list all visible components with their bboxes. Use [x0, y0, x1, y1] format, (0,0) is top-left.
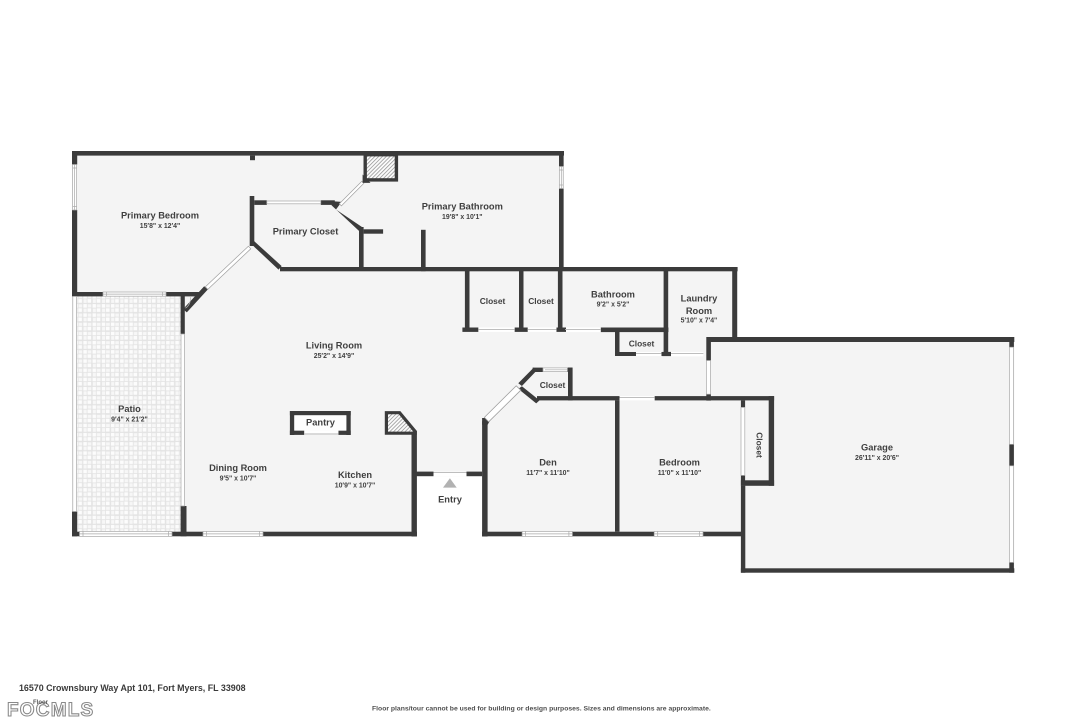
svg-text:Closet: Closet [480, 296, 506, 306]
svg-text:Pantry: Pantry [306, 418, 336, 428]
svg-text:19′8" x 10′1": 19′8" x 10′1" [442, 214, 483, 221]
svg-text:Entry: Entry [438, 495, 463, 505]
svg-text:Bathroom: Bathroom [591, 290, 635, 300]
svg-text:Primary Bathroom: Primary Bathroom [422, 202, 503, 212]
svg-text:Closet: Closet [540, 380, 566, 390]
svg-text:Closet: Closet [755, 432, 765, 458]
svg-text:Bedroom: Bedroom [659, 458, 700, 468]
svg-text:15′8" x 12′4": 15′8" x 12′4" [140, 223, 181, 230]
svg-text:25′2" x 14′9": 25′2" x 14′9" [314, 353, 355, 360]
svg-text:5′10" x 7′4": 5′10" x 7′4" [681, 318, 718, 325]
svg-text:Living Room: Living Room [306, 341, 362, 351]
svg-text:Garage: Garage [861, 443, 893, 453]
svg-text:Primary Bedroom: Primary Bedroom [121, 211, 199, 221]
svg-text:16570 Crownsbury Way Apt 101,: 16570 Crownsbury Way Apt 101, Fort Myers… [19, 683, 246, 693]
svg-text:9′2" x 5′2": 9′2" x 5′2" [597, 302, 630, 309]
svg-text:Room: Room [686, 306, 712, 316]
svg-text:Floor plans/tour cannot be use: Floor plans/tour cannot be used for buil… [372, 706, 711, 713]
svg-text:Closet: Closet [629, 339, 655, 349]
svg-text:Floor: Floor [33, 700, 49, 706]
svg-text:Kitchen: Kitchen [338, 470, 372, 480]
svg-text:11′0" x 11′10": 11′0" x 11′10" [658, 470, 702, 477]
svg-text:Den: Den [539, 458, 557, 468]
svg-text:11′7" x 11′10": 11′7" x 11′10" [526, 470, 570, 477]
svg-text:10′9" x 10′7": 10′9" x 10′7" [335, 483, 376, 490]
svg-text:26′11" x 20′6": 26′11" x 20′6" [855, 455, 899, 462]
svg-text:Dining Room: Dining Room [209, 463, 267, 473]
svg-text:Closet: Closet [528, 296, 554, 306]
svg-text:9′5" x 10′7": 9′5" x 10′7" [220, 476, 257, 483]
svg-text:Laundry: Laundry [681, 294, 719, 304]
svg-text:9′4" x 21′2": 9′4" x 21′2" [111, 417, 148, 424]
svg-text:Patio: Patio [118, 404, 141, 414]
svg-text:Primary Closet: Primary Closet [273, 227, 339, 237]
svg-text:FOCMLS: FOCMLS [7, 700, 94, 721]
